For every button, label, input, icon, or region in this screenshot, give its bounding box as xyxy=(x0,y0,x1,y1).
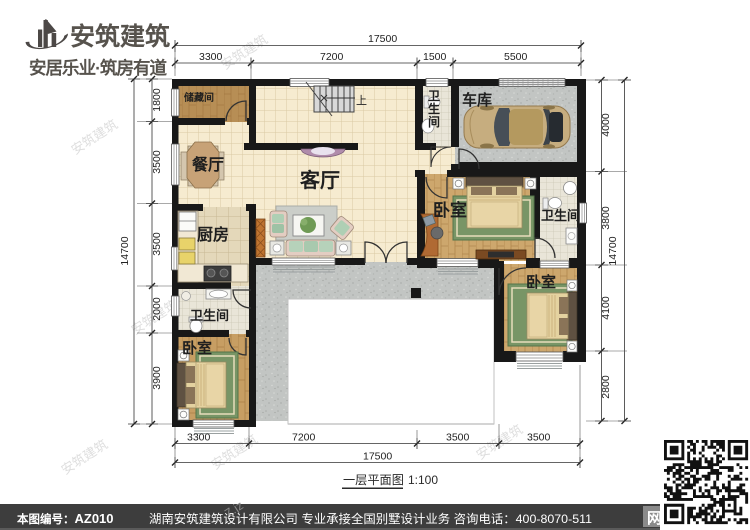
svg-text:17500: 17500 xyxy=(363,451,392,463)
svg-text:1800: 1800 xyxy=(151,88,163,112)
svg-text:本图编号：AZ010: 本图编号：AZ010 xyxy=(17,511,114,526)
svg-text:厨房: 厨房 xyxy=(197,225,229,244)
svg-text:2800: 2800 xyxy=(600,375,612,399)
svg-text:4100: 4100 xyxy=(600,296,612,320)
svg-text:14700: 14700 xyxy=(119,236,131,265)
svg-text:网: 网 xyxy=(647,510,662,527)
svg-text:1:100: 1:100 xyxy=(408,473,438,487)
svg-text:安筑建筑: 安筑建筑 xyxy=(208,432,260,473)
svg-text:卫生间: 卫生间 xyxy=(428,89,440,129)
svg-text:安居乐业·筑房有道: 安居乐业·筑房有道 xyxy=(29,58,168,78)
svg-text:3500: 3500 xyxy=(446,432,470,444)
svg-text:14700: 14700 xyxy=(607,236,619,265)
svg-text:3500: 3500 xyxy=(151,232,163,256)
svg-text:3500: 3500 xyxy=(527,432,551,444)
svg-text:上: 上 xyxy=(356,94,367,107)
svg-text:卧室: 卧室 xyxy=(433,200,467,220)
svg-text:3900: 3900 xyxy=(151,366,163,390)
svg-text:3300: 3300 xyxy=(199,51,223,63)
svg-text:安筑建筑: 安筑建筑 xyxy=(58,437,110,478)
svg-text:餐厅: 餐厅 xyxy=(191,155,224,174)
svg-text:7200: 7200 xyxy=(292,432,316,444)
svg-text:3300: 3300 xyxy=(187,432,211,444)
svg-text:储藏间: 储藏间 xyxy=(183,91,214,104)
svg-text:5500: 5500 xyxy=(504,51,528,63)
svg-text:卧室: 卧室 xyxy=(526,273,556,291)
svg-text:卫生间: 卫生间 xyxy=(190,308,229,323)
svg-text:安筑建筑: 安筑建筑 xyxy=(218,32,270,73)
svg-text:安筑建筑: 安筑建筑 xyxy=(70,22,170,51)
svg-text:3800: 3800 xyxy=(600,206,612,230)
svg-text:1500: 1500 xyxy=(423,51,447,63)
svg-text:卧室: 卧室 xyxy=(182,339,212,357)
svg-text:3500: 3500 xyxy=(151,150,163,174)
svg-text:4000: 4000 xyxy=(600,113,612,137)
svg-text:一层平面图: 一层平面图 xyxy=(343,473,404,487)
svg-text:湖南安筑建筑设计有限公司 专业承接全国别墅设计业务 咨询: 湖南安筑建筑设计有限公司 专业承接全国别墅设计业务 咨询电话：400-8070-… xyxy=(149,511,592,526)
svg-text:安筑建筑: 安筑建筑 xyxy=(68,117,120,158)
svg-text:2000: 2000 xyxy=(151,297,163,321)
svg-text:客厅: 客厅 xyxy=(299,168,340,192)
svg-text:卫生间: 卫生间 xyxy=(541,208,580,223)
svg-text:7200: 7200 xyxy=(320,51,344,63)
svg-text:车库: 车库 xyxy=(462,91,492,109)
svg-text:17500: 17500 xyxy=(368,33,397,45)
